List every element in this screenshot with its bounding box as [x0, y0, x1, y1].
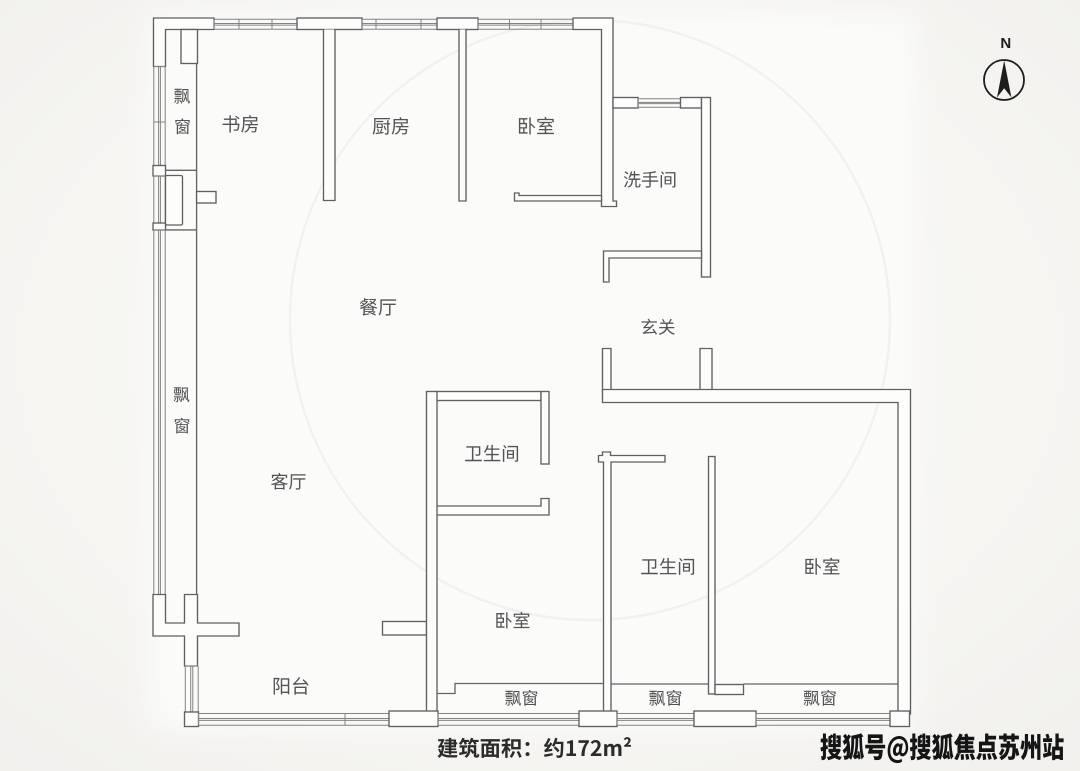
- svg-text:N: N: [1000, 35, 1011, 52]
